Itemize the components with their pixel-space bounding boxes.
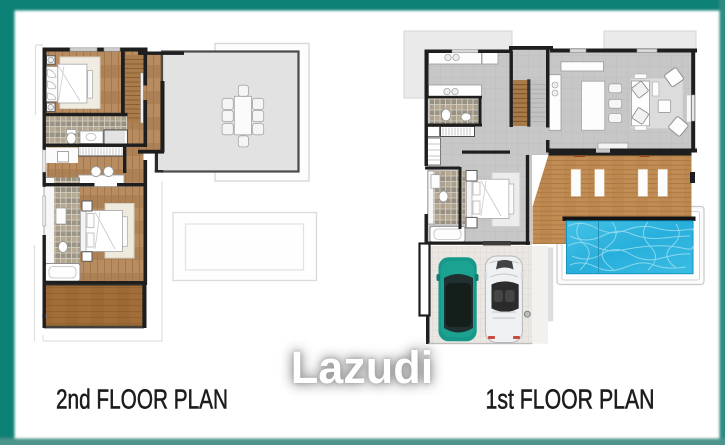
svg-text:1st FLOOR PLAN: 1st FLOOR PLAN [486,384,655,415]
svg-text:2nd FLOOR PLAN: 2nd FLOOR PLAN [56,384,228,415]
svg-text:Lazudi: Lazudi [291,342,434,393]
